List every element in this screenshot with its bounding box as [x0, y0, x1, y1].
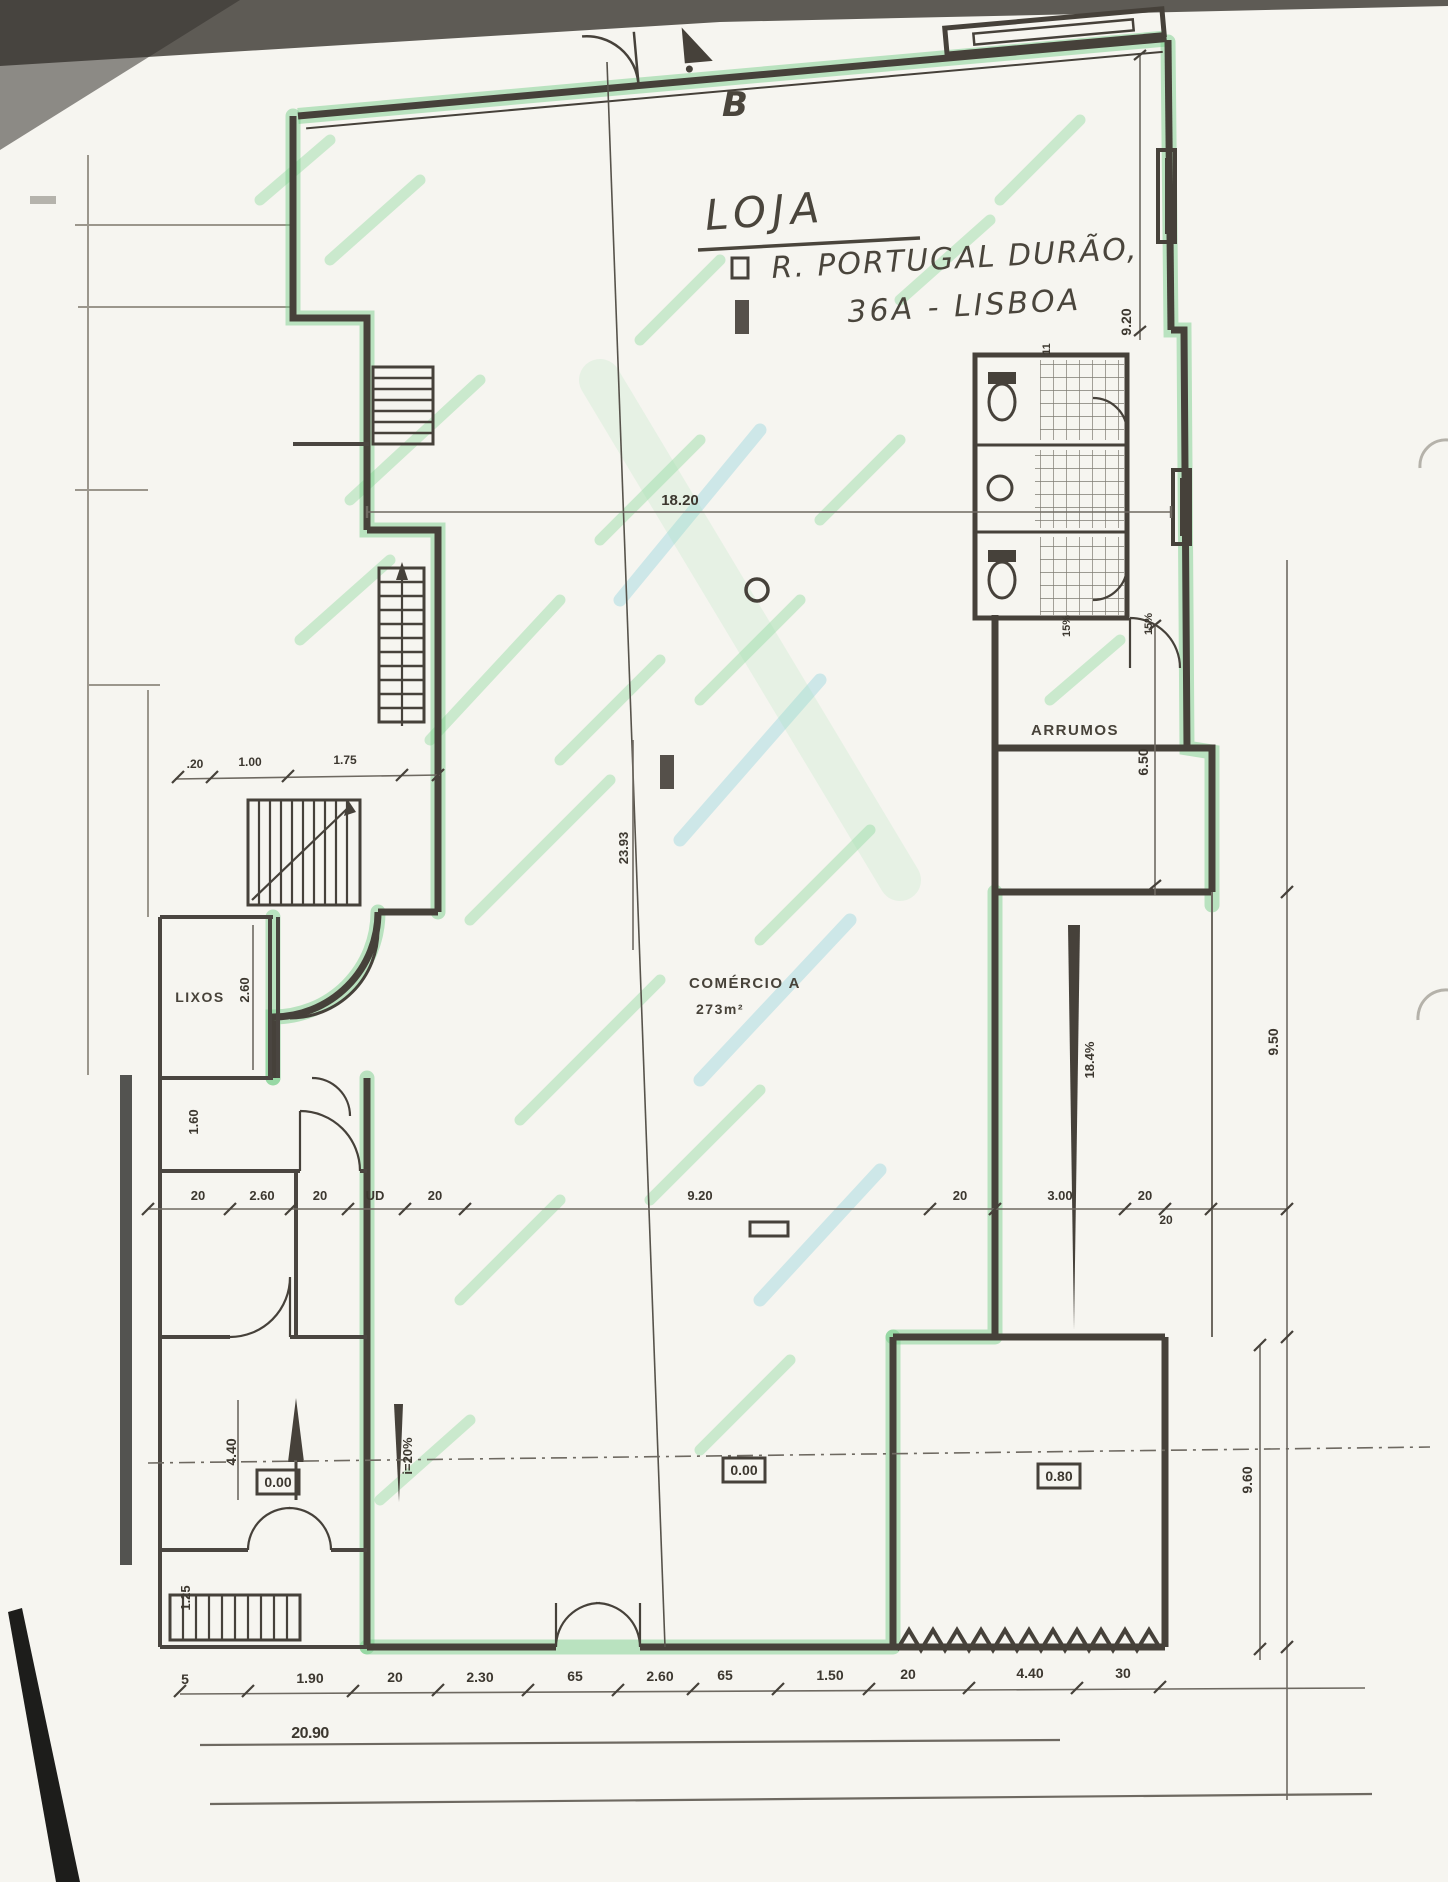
dim-mid-0: 20: [191, 1188, 205, 1203]
dim-bot-10: 30: [1115, 1665, 1131, 1681]
toilet-1: [989, 384, 1015, 420]
wall-right-upper: [1168, 40, 1171, 330]
dim-bot-6: 65: [717, 1667, 733, 1683]
toilet-tank-2: [988, 550, 1016, 562]
floor-plan-drawing: B: [0, 0, 1448, 1882]
dim-stair-0: .20: [187, 757, 204, 771]
partitions-lower-left: [160, 444, 369, 1647]
room-label-lixos: LIXOS: [175, 989, 225, 1005]
dim-mid-2: 20: [313, 1188, 327, 1203]
room-label-comercio: COMÉRCIO A: [689, 975, 801, 992]
room-label-arrumos: ARRUMOS: [1031, 722, 1119, 739]
dim-right-bottom: 9.60: [1239, 1466, 1255, 1493]
dim-axis-length: 23.93: [616, 832, 631, 865]
dim-bot-3: 2.30: [466, 1669, 493, 1685]
dim-stair-2: 1.75: [333, 753, 357, 767]
title-loja: LOJA: [703, 183, 826, 240]
stair-upper: [373, 367, 433, 444]
dim-left-bottom: 1.25: [178, 1585, 193, 1610]
dim-lixos-height: 2.60: [237, 977, 252, 1002]
section-marker-label: B: [722, 85, 748, 125]
dimline-outer-total: [210, 1794, 1372, 1804]
wc-block: [975, 355, 1127, 618]
door-swing-room3: [248, 1508, 331, 1550]
slope-ramp-right: 18.4%: [1082, 1041, 1097, 1078]
dim-top-width: 18.20: [661, 492, 699, 509]
toilet-tank-1: [988, 372, 1016, 384]
dim-mid-8: 20: [1138, 1188, 1152, 1203]
level-right: 0.80: [1045, 1468, 1072, 1484]
up-arrow-lower-left: [288, 1398, 304, 1462]
dim-right-mid: 9.50: [1265, 1028, 1281, 1055]
dim-bot-8: 20: [900, 1666, 916, 1682]
dim-arrumos-height: 6.50: [1135, 748, 1151, 775]
title-number-city: 36A - LISBOA: [847, 283, 1082, 330]
scanned-floor-plan-page: B: [0, 0, 1448, 1882]
title-street: R. PORTUGAL DURÃO,: [771, 231, 1140, 286]
dim-bot-1: 1.90: [296, 1670, 323, 1686]
level-left: 0.00: [264, 1474, 291, 1490]
door-swing-room1: [300, 1111, 360, 1171]
dim-left-lower: 4.40: [223, 1438, 239, 1465]
slope-wc-right: 15%: [1143, 613, 1155, 635]
stair-arrow-up: [396, 562, 408, 580]
dim-bot-5: 2.60: [646, 1668, 673, 1684]
dim-bot-9: 4.40: [1016, 1665, 1043, 1681]
stair-mid: [379, 562, 424, 726]
dim-bot-4: 65: [567, 1668, 583, 1684]
dim-wc-top: 11: [1041, 343, 1053, 355]
neighbour-outline: [75, 155, 293, 1075]
door-swing-lixos: [312, 1078, 350, 1116]
dim-stair-1: 1.00: [238, 755, 262, 769]
dim-mid-5: 9.20: [687, 1188, 712, 1203]
title-block: LOJA R. PORTUGAL DURÃO, 36A - LISBOA: [698, 183, 1139, 330]
room-area-comercio: 273m²: [696, 1001, 744, 1017]
dim-lixos-below: 1.60: [186, 1109, 201, 1134]
dim-bot-2: 20: [387, 1669, 403, 1685]
level-datum-line: [148, 1447, 1430, 1463]
section-cut-flag: [682, 25, 713, 63]
scan-artifacts: [0, 0, 1448, 1882]
level-middle: 0.00: [730, 1462, 757, 1478]
slope-ramp-left: i=20%: [400, 1437, 415, 1475]
dim-mid-1: 2.60: [249, 1188, 274, 1203]
slope-wc-left: 15%: [1061, 615, 1073, 637]
dim-mid-3: UD: [366, 1188, 385, 1203]
dimline-total: [200, 1740, 1060, 1745]
dim-bot-0: 5: [181, 1671, 189, 1687]
toilet-2: [989, 562, 1015, 598]
wc-sink: [988, 476, 1012, 500]
level-markers: 0.00 0.00 0.80: [257, 1458, 1080, 1494]
dim-right-small: 20: [1159, 1213, 1173, 1227]
ramp-arrow-right: [1068, 925, 1080, 1330]
dim-right-top: 9.20: [1118, 308, 1134, 335]
dim-mid-6: 20: [953, 1188, 967, 1203]
dim-mid-4: 20: [428, 1188, 442, 1203]
stair-lower-left: [248, 800, 360, 905]
door-swing-room2: [230, 1277, 290, 1337]
dim-mid-7: 3.00: [1047, 1188, 1072, 1203]
dim-total-width: 20.90: [291, 1725, 329, 1742]
dim-bot-7: 1.50: [816, 1667, 843, 1683]
